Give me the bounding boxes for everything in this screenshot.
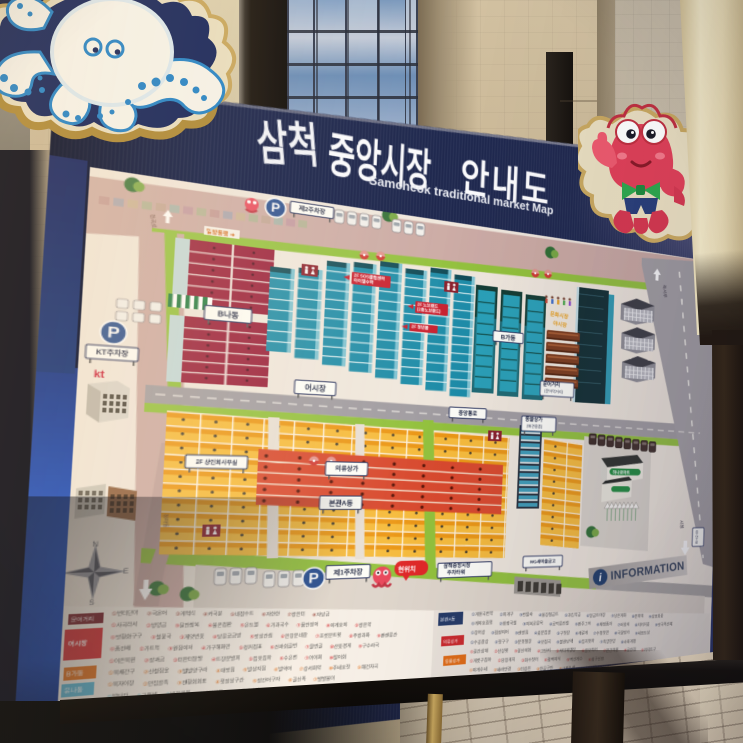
svg-text:중앙통로: 중앙통로 xyxy=(458,409,477,417)
svg-text:야시장: 야시장 xyxy=(553,319,568,328)
svg-text:동물상가: 동물상가 xyxy=(525,416,543,423)
svg-text:시청: 시청 xyxy=(679,520,685,529)
svg-text:앙: 앙 xyxy=(695,535,698,540)
svg-text:P: P xyxy=(271,201,281,216)
svg-text:문화시장: 문화시장 xyxy=(550,310,570,320)
svg-text:로: 로 xyxy=(695,541,698,546)
svg-text:B가동: B가동 xyxy=(501,333,516,342)
svg-text:P: P xyxy=(107,323,120,341)
svg-text:B나동: B나동 xyxy=(217,309,239,320)
svg-text:kt: kt xyxy=(93,368,104,380)
svg-text:어시장: 어시장 xyxy=(305,383,327,393)
svg-text:의류상가: 의류상가 xyxy=(335,464,359,472)
svg-text:하나로마트: 하나로마트 xyxy=(613,470,631,476)
svg-text:문어거리: 문어거리 xyxy=(543,381,560,389)
svg-text:④앗점국: ④앗점국 xyxy=(537,639,551,645)
svg-text:MG새마을금고: MG새마을금고 xyxy=(530,558,556,565)
svg-text:중: 중 xyxy=(695,530,698,535)
